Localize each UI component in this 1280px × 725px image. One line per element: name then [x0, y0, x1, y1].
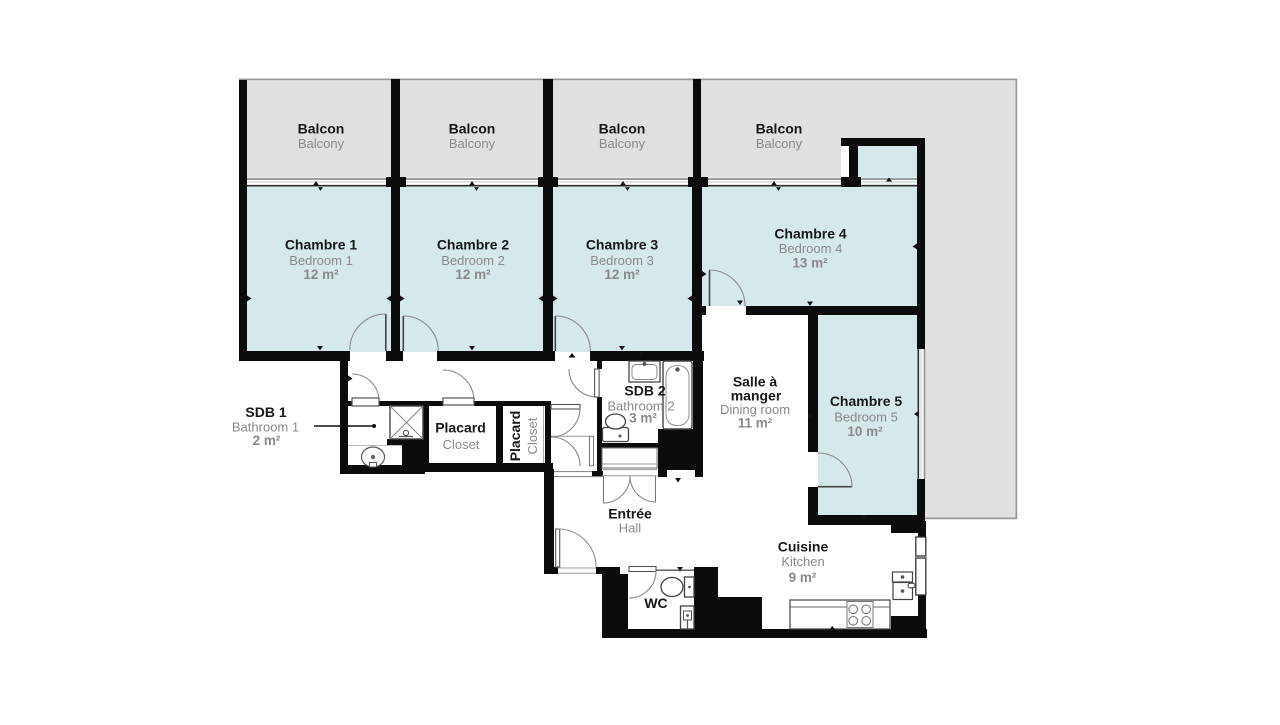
- svg-text:Kitchen: Kitchen: [781, 554, 824, 569]
- svg-text:WC: WC: [644, 595, 667, 611]
- svg-text:3 m²: 3 m²: [629, 411, 657, 426]
- svg-text:Balcony: Balcony: [599, 136, 646, 151]
- svg-text:Balcony: Balcony: [298, 136, 345, 151]
- svg-text:Balcon: Balcon: [599, 121, 646, 137]
- svg-text:12 m²: 12 m²: [455, 267, 491, 282]
- svg-text:Closet: Closet: [443, 437, 480, 452]
- svg-text:SDB 2: SDB 2: [624, 383, 665, 399]
- svg-text:SDB 1: SDB 1: [245, 404, 286, 420]
- svg-text:Entrée: Entrée: [608, 505, 652, 521]
- svg-text:Bedroom 3: Bedroom 3: [590, 253, 654, 268]
- svg-text:Balcon: Balcon: [756, 121, 803, 137]
- svg-text:2 m²: 2 m²: [253, 433, 281, 448]
- svg-text:12 m²: 12 m²: [303, 267, 339, 282]
- svg-text:Closet: Closet: [525, 417, 540, 454]
- svg-text:9 m²: 9 m²: [789, 570, 817, 585]
- svg-text:Chambre 1: Chambre 1: [285, 237, 358, 253]
- svg-text:Chambre 4: Chambre 4: [774, 225, 847, 241]
- svg-text:Balcony: Balcony: [449, 136, 496, 151]
- svg-text:Hall: Hall: [619, 520, 642, 535]
- svg-text:10 m²: 10 m²: [847, 424, 883, 439]
- svg-text:Bedroom 4: Bedroom 4: [779, 241, 843, 256]
- svg-text:Bedroom 2: Bedroom 2: [441, 253, 505, 268]
- svg-text:Balcon: Balcon: [298, 121, 345, 137]
- svg-text:11 m²: 11 m²: [738, 415, 773, 430]
- svg-text:13 m²: 13 m²: [792, 255, 828, 270]
- svg-text:Chambre 3: Chambre 3: [586, 237, 659, 253]
- svg-text:Placard: Placard: [507, 411, 523, 462]
- svg-text:12 m²: 12 m²: [604, 267, 640, 282]
- svg-text:Bedroom 1: Bedroom 1: [289, 253, 353, 268]
- svg-text:Balcon: Balcon: [449, 121, 496, 137]
- svg-text:Placard: Placard: [435, 419, 486, 435]
- svg-text:Chambre 2: Chambre 2: [437, 237, 510, 253]
- svg-text:Chambre 5: Chambre 5: [830, 393, 903, 409]
- svg-text:Balcony: Balcony: [756, 136, 803, 151]
- svg-text:Cuisine: Cuisine: [778, 539, 829, 555]
- svg-text:Bedroom 5: Bedroom 5: [834, 410, 898, 425]
